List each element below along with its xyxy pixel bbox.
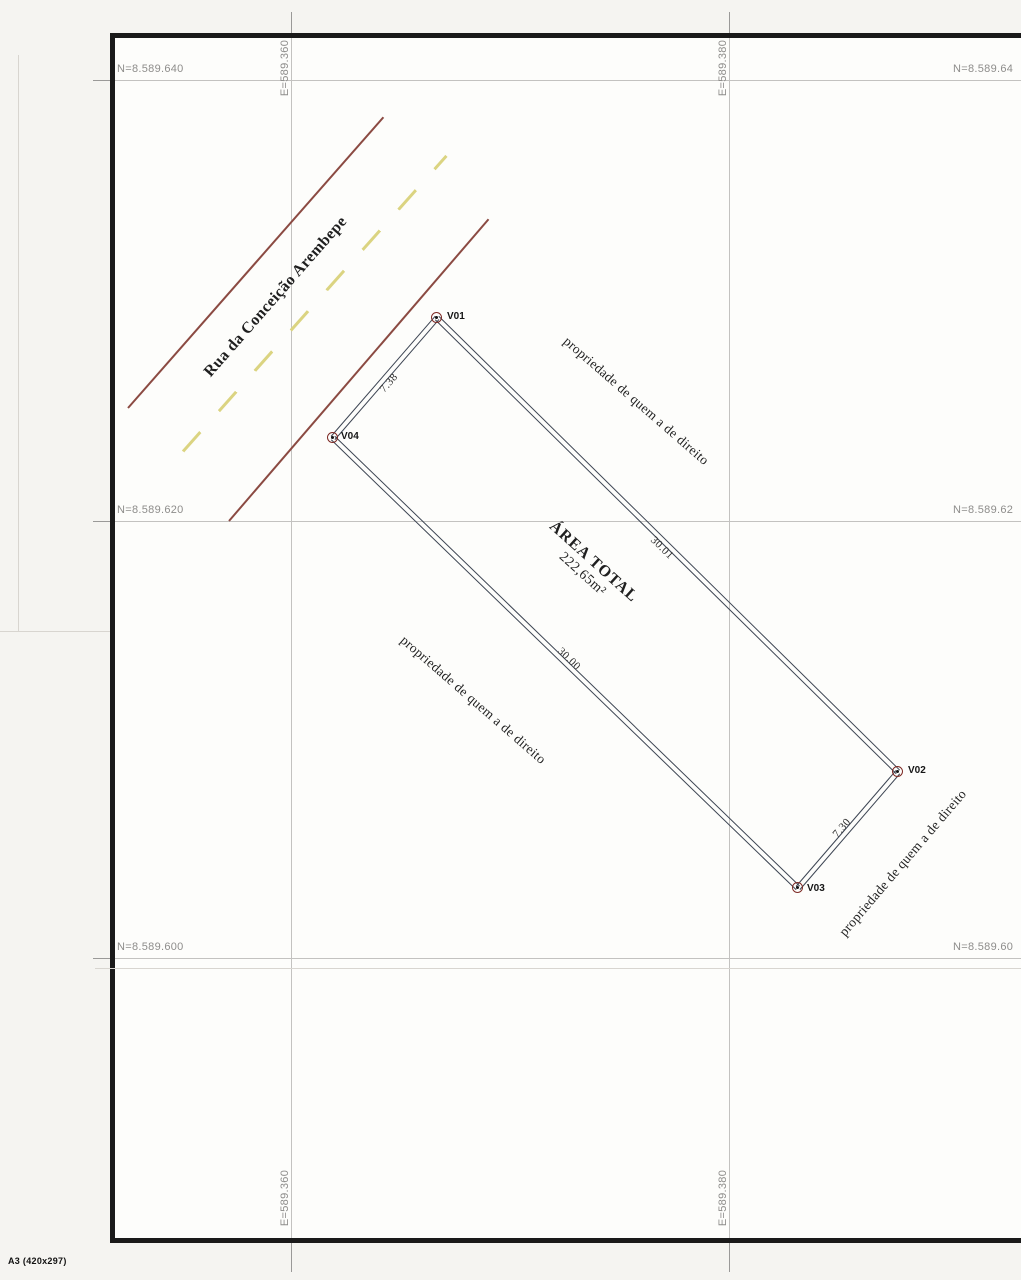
coord-label-e380-bottom: E=589.380 [717,1170,729,1226]
sheet-format-label: A3 (420x297) [8,1256,67,1266]
grid-tick-e360-bottom [291,1243,292,1272]
coord-label-n600-left: N=8.589.600 [117,941,184,953]
scan-artifact-line-vertical [18,55,19,632]
vertex-label-v01: V01 [447,311,465,322]
vertex-label-v04: V04 [341,431,359,442]
grid-line-n620 [115,521,1021,522]
scan-artifact-line-horizontal [0,631,110,632]
grid-tick-n640-left [93,80,110,81]
coord-label-e380-top: E=589.380 [717,40,729,96]
grid-tick-e360-top [291,12,292,33]
grid-line-n600 [115,958,1021,959]
grid-tick-e380-bottom [729,1243,730,1272]
scan-artifact-line-n600 [95,968,1021,969]
vertex-label-v03: V03 [807,883,825,894]
coord-label-e360-bottom: E=589.360 [279,1170,291,1226]
survey-plan-canvas: N=8.589.640 N=8.589.64 N=8.589.620 N=8.5… [0,0,1021,1280]
grid-tick-e380-top [729,12,730,33]
vertex-marker-v04 [327,432,338,443]
grid-line-e380 [729,38,730,1238]
vertex-marker-v02 [892,766,903,777]
coord-label-n620-right: N=8.589.62 [953,504,1013,516]
vertex-marker-v03 [792,882,803,893]
vertex-marker-v01 [431,312,442,323]
coord-label-n620-left: N=8.589.620 [117,504,184,516]
coord-label-n640-left: N=8.589.640 [117,63,184,75]
drawing-frame-border [110,33,1021,1243]
coord-label-n600-right: N=8.589.60 [953,941,1013,953]
grid-line-n640 [115,80,1021,81]
coord-label-n640-right: N=8.589.64 [953,63,1013,75]
vertex-label-v02: V02 [908,765,926,776]
grid-tick-n600-left [93,958,110,959]
grid-tick-n620-left [93,521,110,522]
coord-label-e360-top: E=589.360 [279,40,291,96]
